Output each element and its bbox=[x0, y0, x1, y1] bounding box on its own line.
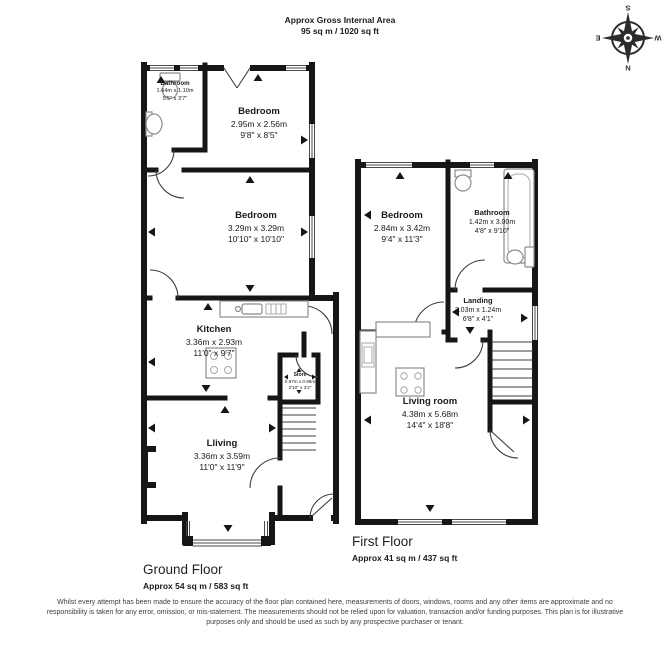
first-stairs bbox=[492, 342, 533, 396]
room-label-landing: Landing 2.03m x 1.24m 6'8" x 4'1" bbox=[455, 296, 501, 324]
ground-stairs bbox=[282, 408, 316, 450]
sink-icon bbox=[146, 112, 162, 136]
compass-w-label: W bbox=[654, 34, 662, 43]
room-label-bedroom-top: Bedroom 2.95m x 2.56m 9'8" x 8'5" bbox=[231, 106, 287, 141]
compass-e-label: E bbox=[595, 34, 600, 43]
compass-s-label: S bbox=[625, 4, 630, 13]
page-title: Approx Gross Internal Area 95 sq m / 102… bbox=[285, 15, 396, 37]
gross-area-title: Approx Gross Internal Area bbox=[285, 15, 396, 26]
sink-icon-first bbox=[455, 170, 471, 191]
fireplace-icon bbox=[142, 446, 156, 488]
floor-label-ground: Ground Floor Approx 54 sq m / 583 sq ft bbox=[143, 562, 248, 591]
gross-area-value: 95 sq m / 1020 sq ft bbox=[285, 26, 396, 37]
french-door-icon bbox=[224, 68, 250, 88]
stair-door-leaf bbox=[492, 432, 514, 452]
floor-label-first: First Floor Approx 41 sq m / 437 sq ft bbox=[352, 534, 457, 563]
disclaimer-text: Whilst every attempt has been made to en… bbox=[46, 598, 624, 628]
room-label-living-room-first: Living room 4.38m x 5.68m 14'4" x 18'8" bbox=[402, 396, 458, 431]
room-label-bathroom-first: Bathroom 1.42m x 3.00m 4'8" x 9'10" bbox=[469, 208, 515, 236]
bay-window bbox=[183, 521, 271, 546]
floorplan-drawing: N E S W bbox=[0, 0, 670, 645]
hob-icon-first bbox=[396, 368, 424, 396]
floorplan-page: N E S W Approx Gross Internal Area 95 sq… bbox=[0, 0, 670, 645]
room-label-kitchen: Kitchen 3.36m x 2.93m 11'0" x 9'7" bbox=[186, 324, 242, 359]
room-label-bathroom-ground: Bathroom 1.64m x 1.10m 5'5" x 3'7" bbox=[157, 80, 194, 103]
room-label-store: Store 0.87m x 0.98m 2'10" x 3'2" bbox=[285, 372, 315, 391]
room-label-bedroom-first: Bedroom 2.84m x 3.42m 9'4" x 11'3" bbox=[374, 210, 430, 245]
front-door-leaf bbox=[312, 498, 332, 516]
compass-rose-icon: N E S W bbox=[595, 4, 661, 73]
room-label-living-ground: Lliving 3.36m x 3.59m 11'0" x 11'9" bbox=[194, 438, 250, 473]
kitchen-sink-icon bbox=[220, 301, 308, 317]
room-label-bedroom-middle: Bedroom 3.29m x 3.29m 10'10" x 10'10" bbox=[228, 210, 284, 245]
compass-n-label: N bbox=[625, 64, 630, 73]
